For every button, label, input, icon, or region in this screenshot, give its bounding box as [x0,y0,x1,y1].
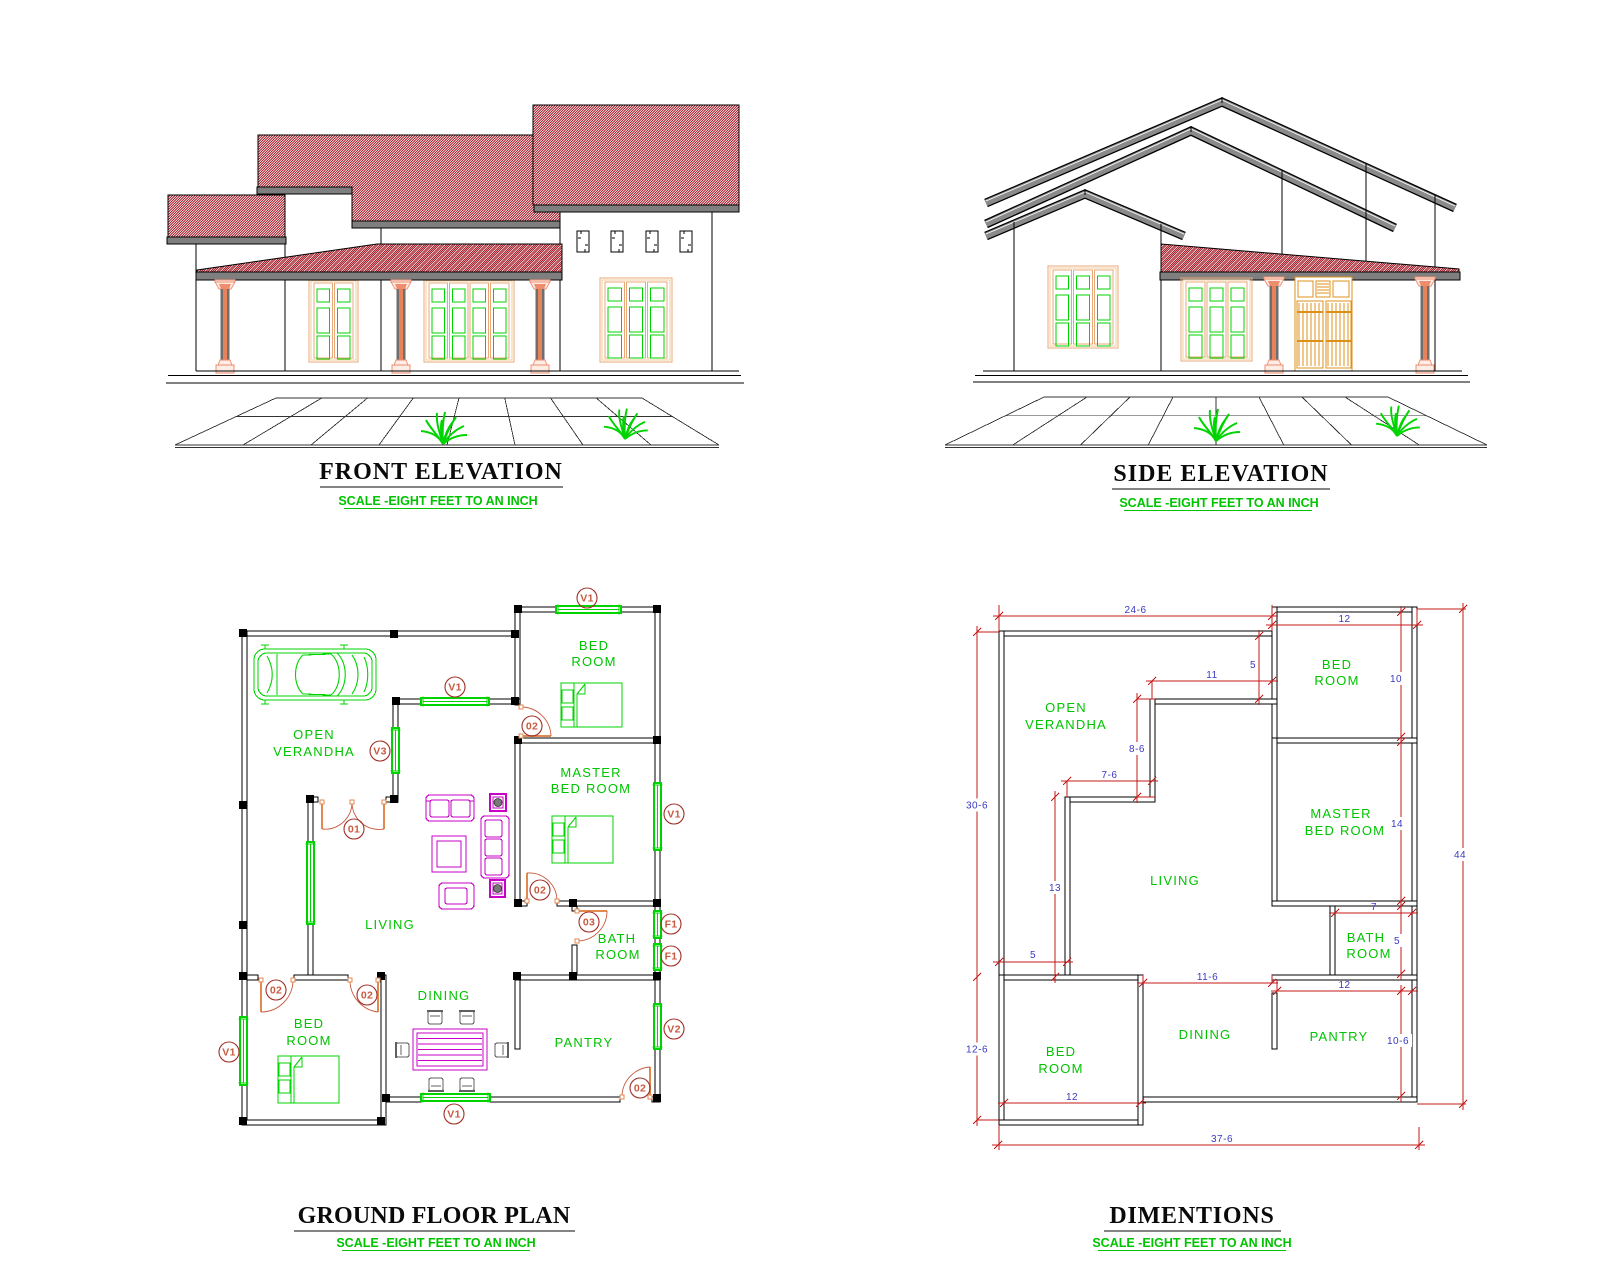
svg-text:11-6: 11-6 [1197,972,1218,983]
svg-text:VERANDHA: VERANDHA [1025,717,1107,732]
svg-text:02: 02 [361,990,373,1002]
svg-text:ROOM: ROOM [595,947,640,962]
svg-text:ROOM: ROOM [571,654,616,669]
svg-text:SCALE -EIGHT FEET TO AN INCH: SCALE -EIGHT FEET TO AN INCH [338,494,537,508]
svg-text:SCALE -EIGHT FEET TO AN INCH: SCALE -EIGHT FEET TO AN INCH [1119,496,1318,510]
svg-text:30-6: 30-6 [966,801,988,812]
svg-text:F1: F1 [665,919,678,931]
svg-text:ROOM: ROOM [286,1033,331,1048]
svg-text:MASTER: MASTER [1310,806,1371,821]
svg-text:BATH: BATH [598,931,637,946]
svg-text:02: 02 [526,721,538,733]
svg-text:10: 10 [1390,674,1402,685]
svg-text:BED: BED [294,1016,324,1031]
svg-text:V1: V1 [580,593,593,605]
svg-text:5: 5 [1250,660,1256,671]
svg-text:SCALE -EIGHT FEET TO AN INCH: SCALE -EIGHT FEET TO AN INCH [336,1236,535,1250]
svg-text:7: 7 [1371,902,1377,913]
svg-text:FRONT ELEVATION: FRONT ELEVATION [319,459,563,485]
svg-text:5: 5 [1030,950,1036,961]
svg-text:V1: V1 [667,809,680,821]
svg-text:PANTRY: PANTRY [555,1035,614,1050]
svg-text:BED ROOM: BED ROOM [551,781,631,796]
svg-text:VERANDHA: VERANDHA [273,744,355,759]
svg-text:7-6: 7-6 [1102,770,1118,781]
svg-text:12-6: 12-6 [966,1045,988,1056]
svg-text:01: 01 [348,824,360,836]
svg-text:BATH: BATH [1347,930,1386,945]
svg-text:LIVING: LIVING [1150,873,1200,888]
svg-text:BED: BED [1322,657,1352,672]
svg-text:DINING: DINING [1179,1027,1232,1042]
svg-text:SCALE -EIGHT FEET TO AN INCH: SCALE -EIGHT FEET TO AN INCH [1092,1236,1291,1250]
svg-text:V1: V1 [447,1109,460,1121]
svg-text:GROUND FLOOR PLAN: GROUND FLOOR PLAN [298,1203,571,1229]
svg-text:ROOM: ROOM [1038,1061,1083,1076]
svg-text:OPEN: OPEN [1045,700,1087,715]
svg-text:BED: BED [579,638,609,653]
svg-text:02: 02 [270,985,282,997]
svg-text:BED: BED [1046,1044,1076,1059]
svg-text:13: 13 [1049,883,1061,894]
svg-text:DIMENTIONS: DIMENTIONS [1109,1203,1274,1229]
svg-text:ROOM: ROOM [1346,946,1391,961]
svg-text:8-6: 8-6 [1129,744,1145,755]
svg-text:V1: V1 [448,682,461,694]
svg-text:SIDE ELEVATION: SIDE ELEVATION [1113,461,1328,487]
svg-text:11: 11 [1206,670,1217,681]
svg-text:V3: V3 [373,746,386,758]
svg-text:12: 12 [1338,614,1350,625]
svg-text:OPEN: OPEN [293,727,335,742]
svg-text:BED ROOM: BED ROOM [1305,823,1385,838]
svg-text:12: 12 [1066,1092,1078,1103]
svg-text:DINING: DINING [418,988,471,1003]
svg-text:02: 02 [634,1083,646,1095]
svg-text:ROOM: ROOM [1314,673,1359,688]
svg-text:37-6: 37-6 [1211,1134,1233,1145]
svg-text:03: 03 [583,917,595,929]
svg-text:V2: V2 [667,1024,680,1036]
svg-text:10-6: 10-6 [1387,1036,1409,1047]
svg-text:PANTRY: PANTRY [1310,1029,1369,1044]
svg-text:MASTER: MASTER [560,765,621,780]
svg-text:14: 14 [1391,819,1403,830]
svg-text:12: 12 [1338,980,1350,991]
svg-text:F1: F1 [665,951,678,963]
svg-text:V1: V1 [222,1047,235,1059]
svg-text:24-6: 24-6 [1124,605,1146,616]
svg-text:44: 44 [1454,850,1466,861]
svg-text:LIVING: LIVING [365,917,415,932]
svg-text:5: 5 [1394,936,1400,947]
svg-text:02: 02 [534,885,546,897]
